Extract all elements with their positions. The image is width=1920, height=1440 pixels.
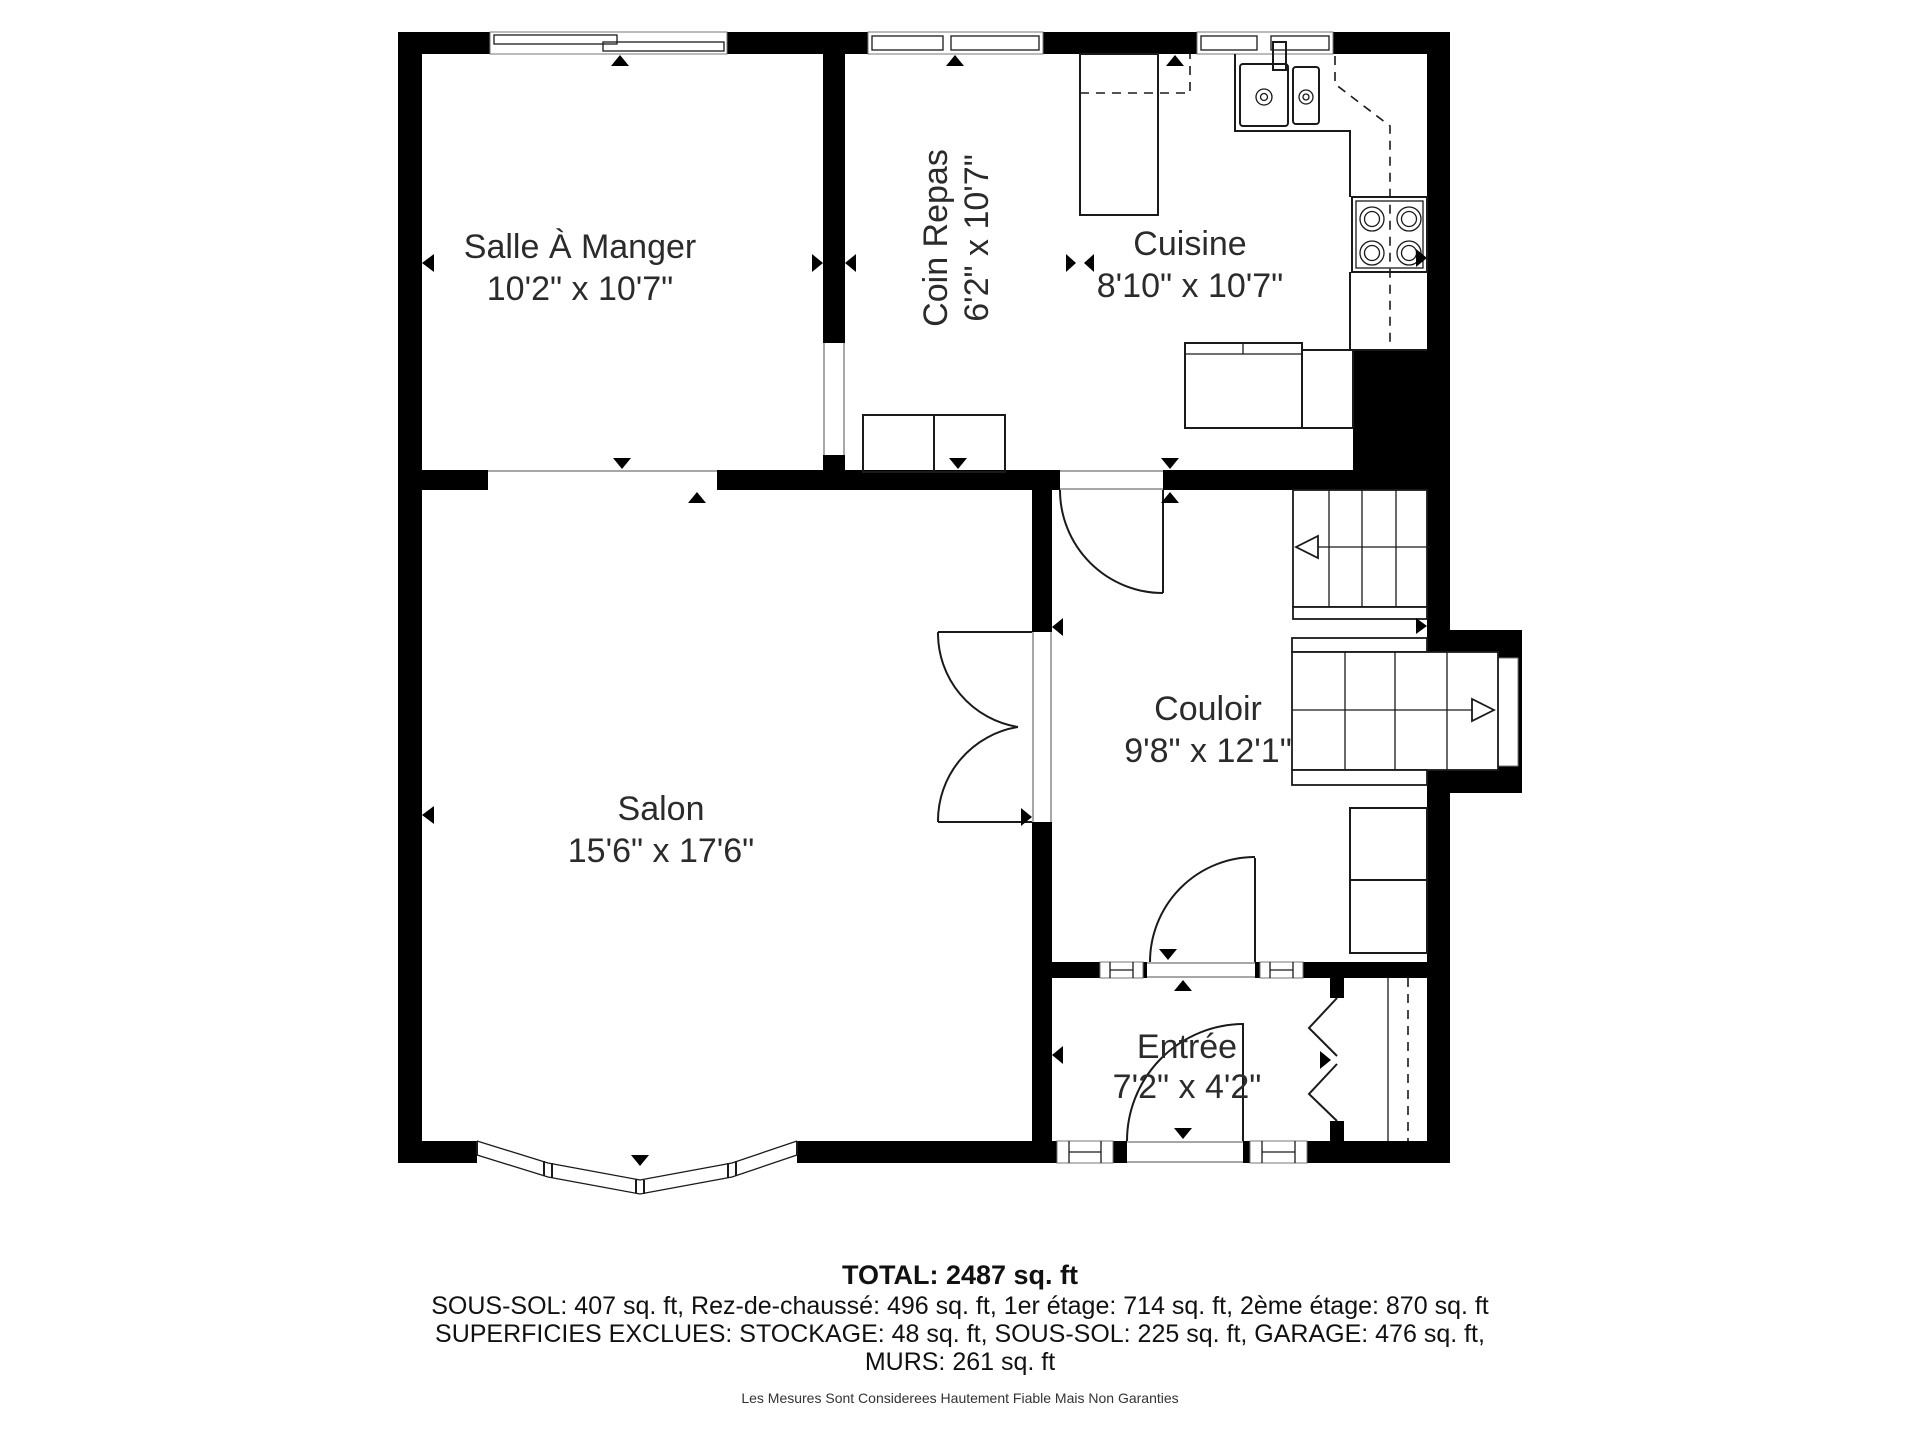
summary-walls: MURS: 261 sq. ft [865,1348,1055,1376]
label-salle-a-manger-dims: 10'2" x 10'7" [487,270,673,308]
label-cuisine-name: Cuisine [1133,225,1246,263]
built-ins [1350,808,1427,953]
bay-window [477,1141,797,1194]
label-couloir-name: Couloir [1154,690,1262,728]
coin-repas-bench [863,415,1005,472]
summary-floors: SOUS-SOL: 407 sq. ft, Rez-de-chaussé: 49… [431,1292,1489,1320]
stairs-lower-flight [1292,638,1498,785]
summary-disclaimer: Les Mesures Sont Considerees Hautement F… [741,1390,1178,1406]
window-kitchen [1197,32,1333,54]
door-kitchen-couloir [1060,470,1163,593]
label-entree-name: Entrée [1137,1028,1237,1066]
window-coin-repas [868,32,1043,54]
window-dining [490,32,727,54]
summary-block: TOTAL: 2487 sq. ft SOUS-SOL: 407 sq. ft,… [431,1260,1489,1406]
label-cuisine-dims: 8'10" x 10'7" [1097,267,1283,305]
label-salon-dims: 15'6" x 17'6" [568,832,754,870]
label-coin-repas-name: Coin Repas [917,149,955,327]
stairs-upper-flight [1293,490,1430,619]
fridge [1185,343,1353,428]
label-couloir-dims: 9'8" x 12'1" [1124,732,1292,770]
door-couloir-entree [1147,857,1255,978]
label-salle-a-manger-name: Salle À Manger [464,228,696,266]
side-entrance-door [1498,658,1518,766]
wall-openings [488,343,845,490]
french-doors-salon [938,632,1052,822]
summary-exclusions: SUPERFICIES EXCLUES: STOCKAGE: 48 sq. ft… [435,1320,1485,1348]
window-sidelight-right [1260,962,1303,978]
label-coin-repas-dims: 6'2" x 10'7" [958,154,996,322]
window-entree-right [1250,1141,1307,1163]
floor-plan: Salle À Manger 10'2" x 10'7" Coin Repas … [0,0,1920,1440]
label-entree-dims: 7'2" x 4'2" [1113,1068,1262,1106]
upper-cabinets-dashed [1335,56,1390,348]
window-sidelight-left [1100,962,1143,978]
couloir-closet [1350,808,1427,953]
peninsula-counter [1080,54,1190,215]
floor-plan-canvas: Salle À Manger 10'2" x 10'7" Coin Repas … [0,0,1920,1440]
window-entree-left [1057,1141,1113,1163]
summary-total: TOTAL: 2487 sq. ft [842,1260,1078,1290]
label-salon-name: Salon [618,790,705,828]
